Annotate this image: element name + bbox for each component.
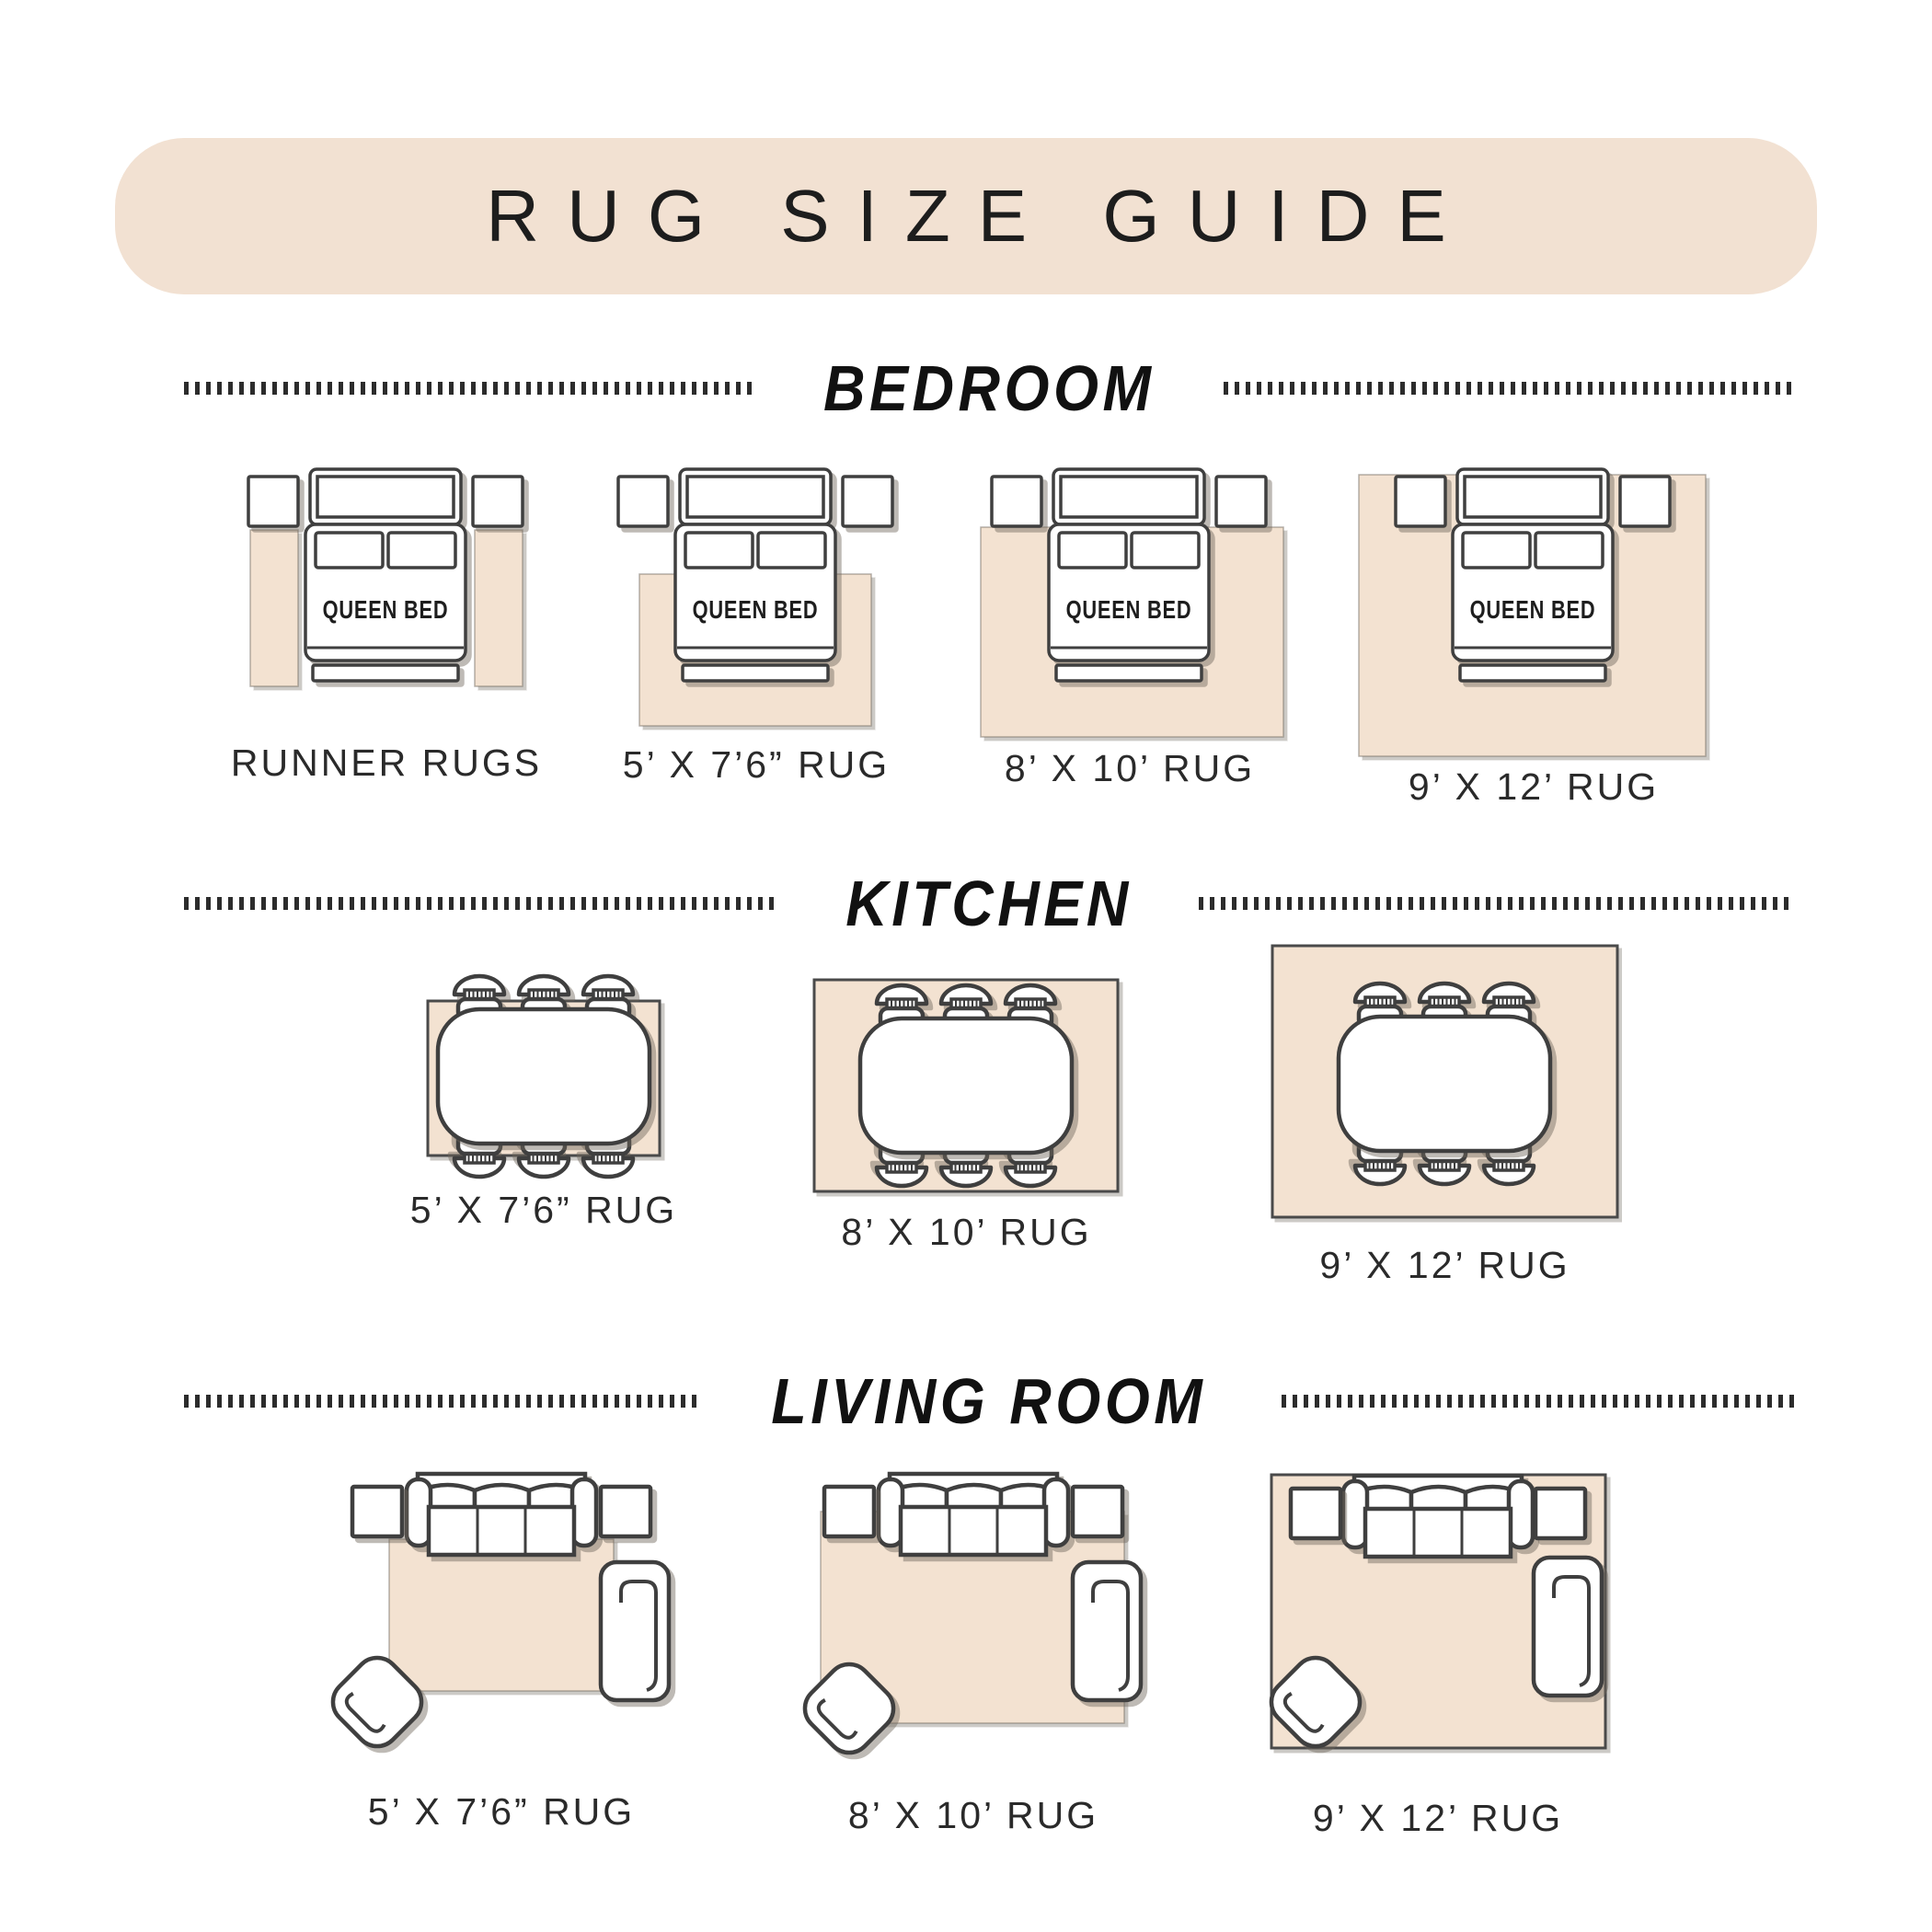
diagram-label: 5’ X 7’6” RUG [406, 1189, 682, 1232]
section-title-bedroom: BEDROOM [823, 351, 1156, 425]
end-table-icon [824, 1487, 874, 1536]
dotted-line [1282, 1395, 1794, 1408]
section-header-living-room: LIVING ROOM [184, 1360, 1794, 1443]
chaise-icon [1073, 1562, 1141, 1700]
queen-bed-icon [305, 469, 466, 681]
section-header-kitchen: KITCHEN [184, 862, 1794, 945]
nightstand-icon [473, 477, 523, 526]
bedroom-8x10-rug-diagram [950, 464, 1309, 743]
living-room-9x12-rug-diagram [1217, 1463, 1659, 1785]
kitchen-9x12-rug-diagram [1268, 941, 1622, 1226]
dotted-line [184, 1395, 696, 1408]
chaise-icon [1534, 1558, 1602, 1696]
bedroom-runner-rugs-diagram [207, 464, 566, 692]
bedroom-9x12-rug-diagram [1354, 464, 1713, 763]
diagram-label: 9’ X 12’ RUG [1268, 1244, 1622, 1287]
diagram-label: 5’ X 7’6” RUG [281, 1790, 722, 1834]
nightstand-icon [843, 477, 892, 526]
end-table-icon [1291, 1489, 1340, 1538]
runner-rug [250, 530, 298, 686]
end-table-icon [352, 1487, 402, 1536]
sofa-icon [407, 1474, 596, 1555]
dotted-line [184, 382, 754, 395]
queen-bed-icon [1453, 469, 1613, 681]
diagram-label: 9’ X 12’ RUG [1217, 1797, 1659, 1840]
nightstand-icon [1216, 477, 1266, 526]
diagram-label: RUNNER RUGS [207, 742, 566, 785]
diagram-label: 9’ X 12’ RUG [1354, 765, 1713, 809]
nightstand-icon [618, 477, 668, 526]
living-room-8x10-rug-diagram [753, 1463, 1194, 1785]
page-title: RUG SIZE GUIDE [486, 174, 1473, 259]
dotted-line [1224, 382, 1794, 395]
end-table-icon [601, 1487, 650, 1536]
end-table-icon [1535, 1489, 1585, 1538]
diagram-label: 5’ X 7’6” RUG [577, 743, 936, 787]
chaise-icon [601, 1562, 669, 1700]
sofa-icon [1343, 1476, 1533, 1557]
diagram-label: 8’ X 10’ RUG [808, 1211, 1125, 1254]
kitchen-8x10-rug-diagram [808, 952, 1125, 1205]
diagram-label: 8’ X 10’ RUG [950, 747, 1309, 790]
nightstand-icon [1396, 477, 1445, 526]
nightstand-icon [248, 477, 298, 526]
dotted-line [1199, 897, 1794, 910]
section-title-kitchen: KITCHEN [845, 867, 1132, 940]
dotted-line [184, 897, 779, 910]
nightstand-icon [992, 477, 1041, 526]
title-banner: RUG SIZE GUIDE [115, 138, 1817, 294]
area-rug [389, 1539, 614, 1691]
living-room-5x76-rug-diagram [281, 1463, 722, 1785]
sofa-icon [879, 1474, 1068, 1555]
end-table-icon [1073, 1487, 1122, 1536]
section-header-bedroom: BEDROOM [184, 347, 1794, 430]
section-title-living-room: LIVING ROOM [771, 1364, 1206, 1438]
diagram-label: 8’ X 10’ RUG [753, 1794, 1194, 1837]
dining-table-icon [1339, 1017, 1550, 1151]
bedroom-5x76-rug-diagram [577, 464, 936, 732]
dining-table-icon [438, 1009, 650, 1144]
nightstand-icon [1620, 477, 1670, 526]
queen-bed-icon [1049, 469, 1209, 681]
kitchen-5x76-rug-diagram [406, 952, 682, 1196]
dining-table-icon [860, 1018, 1072, 1153]
queen-bed-icon [675, 469, 835, 681]
runner-rug [475, 530, 523, 686]
